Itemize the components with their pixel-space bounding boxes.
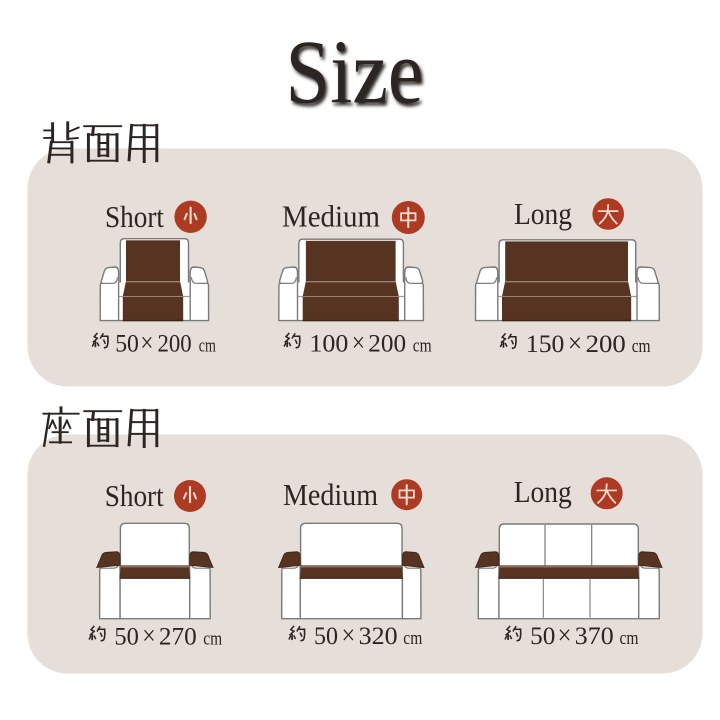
svg-text:×: ×	[558, 620, 572, 650]
svg-text:Short: Short	[105, 479, 164, 513]
svg-text:×: ×	[352, 327, 365, 357]
svg-text:×: ×	[568, 328, 582, 358]
svg-text:×: ×	[342, 620, 356, 650]
svg-text:Long: Long	[514, 197, 572, 231]
svg-text:cm: cm	[403, 628, 422, 649]
svg-text:Size: Size	[286, 22, 424, 123]
svg-text:Medium: Medium	[282, 200, 380, 234]
svg-text:50: 50	[115, 328, 139, 357]
svg-text:320: 320	[359, 621, 398, 650]
svg-text:cm: cm	[203, 628, 222, 649]
svg-text:Long: Long	[514, 475, 572, 509]
svg-text:Short: Short	[105, 200, 164, 234]
svg-text:370: 370	[575, 621, 614, 650]
svg-text:Medium: Medium	[283, 478, 378, 512]
svg-text:×: ×	[142, 620, 155, 650]
svg-text:cm: cm	[413, 335, 432, 356]
svg-text:200: 200	[368, 328, 406, 357]
svg-text:200: 200	[586, 329, 626, 358]
svg-text:50: 50	[114, 621, 138, 650]
svg-text:×: ×	[140, 327, 153, 357]
svg-text:100: 100	[309, 328, 348, 357]
svg-text:cm: cm	[620, 628, 639, 649]
svg-text:cm: cm	[632, 336, 651, 357]
svg-text:270: 270	[159, 621, 197, 650]
svg-text:cm: cm	[199, 335, 216, 356]
svg-text:150: 150	[526, 329, 565, 358]
svg-text:50: 50	[530, 621, 555, 650]
svg-text:50: 50	[314, 621, 338, 650]
svg-text:200: 200	[158, 328, 192, 357]
